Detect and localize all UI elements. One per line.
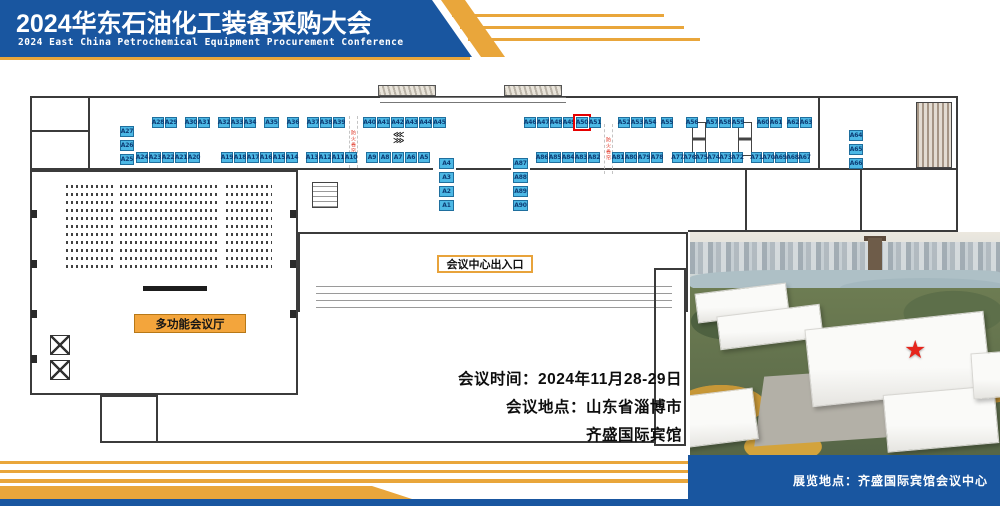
booth-a69: A69: [775, 152, 786, 163]
seat-row: [66, 225, 114, 228]
booth-a31: A31: [198, 117, 210, 128]
booth-a73: A73: [720, 152, 731, 163]
photo-building: [970, 351, 1000, 400]
booth-a45: A45: [433, 117, 446, 128]
exhibition-venue-label: 展览地点：齐盛国际宾馆会议中心: [793, 472, 988, 489]
booth-a5: A5: [418, 152, 430, 163]
booth-a80: A80: [625, 152, 637, 163]
booth-a66: A66: [849, 158, 863, 169]
seat-row: [66, 185, 114, 188]
booth-a18: A18: [234, 152, 246, 163]
seat-row: [120, 233, 220, 236]
seat-row: [226, 225, 272, 228]
seat-row: [120, 185, 220, 188]
booth-a36: A36: [287, 117, 299, 128]
booth-a85: A85: [549, 152, 561, 163]
booth-a84: A84: [562, 152, 574, 163]
booth-a75: A75: [696, 152, 707, 163]
seat-row: [226, 265, 272, 268]
booth-a8: A8: [379, 152, 391, 163]
seat-row: [66, 241, 114, 244]
footer-stripe: [0, 479, 690, 483]
seat-row: [226, 249, 272, 252]
booth-a21: A21: [175, 152, 187, 163]
seat-row: [66, 249, 114, 252]
booth-a4: A4: [439, 158, 454, 169]
pillar: [290, 210, 296, 218]
booth-a26: A26: [120, 140, 134, 151]
booth-a89: A89: [513, 186, 528, 197]
booth-a11: A11: [332, 152, 344, 163]
entrance-canopy: [380, 97, 566, 103]
seat-row: [66, 257, 114, 260]
booth-a60: A60: [757, 117, 769, 128]
header-stripe: [452, 14, 664, 17]
seat-row: [226, 193, 272, 196]
footer-stripe: [0, 470, 690, 473]
conference-subtitle: 2024 East China Petrochemical Equipment …: [18, 37, 404, 48]
wall: [88, 96, 90, 168]
pillar: [31, 210, 37, 218]
seat-row: [226, 257, 272, 260]
seat-row: [226, 241, 272, 244]
booth-a90: A90: [513, 200, 528, 211]
conference-location: 会议地点：山东省淄博市: [400, 394, 682, 422]
footer-gold-band: [0, 486, 412, 499]
seat-row: [66, 217, 114, 220]
booth-a10: A10: [345, 152, 357, 163]
header-stripe: [460, 26, 684, 29]
booth-a77: A77: [672, 152, 683, 163]
booth-a65: A65: [849, 144, 863, 155]
header-stripe: [468, 38, 700, 41]
seat-row: [66, 209, 114, 212]
booth-a34: A34: [244, 117, 256, 128]
seat-row: [226, 185, 272, 188]
booth-a88: A88: [513, 172, 528, 183]
seat-row: [120, 241, 220, 244]
booth-a25: A25: [120, 154, 134, 165]
seat-row: [226, 217, 272, 220]
pillar: [31, 355, 37, 363]
booth-a72: A72: [732, 152, 743, 163]
booth-a57: A57: [706, 117, 718, 128]
entrance-ramp: [378, 85, 436, 96]
conference-title: 2024华东石油化工装备采购大会: [16, 4, 372, 40]
poster: 2024华东石油化工装备采购大会 2024 East China Petroch…: [0, 0, 1000, 506]
booth-a61: A61: [770, 117, 782, 128]
booth-a64: A64: [849, 130, 863, 141]
arrow-right-icon: ⋙: [393, 138, 404, 144]
seat-row: [120, 209, 220, 212]
booth-a22: A22: [162, 152, 174, 163]
booth-a67: A67: [799, 152, 810, 163]
booth-a6: A6: [405, 152, 417, 163]
seat-row: [66, 265, 114, 268]
booth-a71: A71: [751, 152, 762, 163]
seat-row: [120, 225, 220, 228]
booth-a23: A23: [149, 152, 161, 163]
booth-a55: A55: [661, 117, 673, 128]
booth-a29: A29: [165, 117, 177, 128]
seat-row: [120, 193, 220, 196]
wall: [860, 170, 862, 230]
seat-row: [120, 201, 220, 204]
booth-a1: A1: [439, 200, 454, 211]
seat-row: [226, 201, 272, 204]
seat-row: [120, 249, 220, 252]
wall: [456, 168, 511, 170]
booth-a33: A33: [231, 117, 243, 128]
booth-a27: A27: [120, 126, 134, 137]
wall: [818, 96, 820, 170]
booth-a70: A70: [763, 152, 774, 163]
staircase-hatch: [916, 102, 952, 168]
pillar: [31, 310, 37, 318]
booth-a41: A41: [377, 117, 390, 128]
seating-area: [66, 185, 114, 273]
annex-outline: [100, 395, 158, 443]
booth-a3: A3: [439, 172, 454, 183]
multi-function-hall-label: 多功能会议厅: [134, 314, 246, 333]
entrance-ramp: [504, 85, 562, 96]
footer-blue-panel: 展览地点：齐盛国际宾馆会议中心: [688, 455, 1000, 506]
booth-a47: A47: [537, 117, 549, 128]
booth-a14: A14: [286, 152, 298, 163]
booth-a15: A15: [273, 152, 285, 163]
booth-a13: A13: [306, 152, 318, 163]
booth-a28: A28: [152, 117, 164, 128]
booth-a74: A74: [708, 152, 719, 163]
booth-a17: A17: [247, 152, 259, 163]
booth-a52: A52: [618, 117, 630, 128]
booth-a78: A78: [651, 152, 663, 163]
booth-a24: A24: [136, 152, 148, 163]
booth-a7: A7: [392, 152, 404, 163]
wall: [956, 96, 958, 232]
booth-a62: A62: [787, 117, 799, 128]
booth-a39: A39: [333, 117, 345, 128]
stairs-icon: [50, 360, 70, 380]
booth-a44: A44: [419, 117, 432, 128]
direction-arrows-icon: ⋘ ⋙: [393, 132, 404, 144]
venue-star-marker-icon: ★: [904, 338, 926, 363]
seating-area: [120, 185, 220, 273]
wall: [745, 170, 747, 230]
booth-a48: A48: [550, 117, 562, 128]
booth-a87: A87: [513, 158, 528, 169]
seat-row: [66, 193, 114, 196]
conference-info: 会议时间：2024年11月28-29日 会议地点：山东省淄博市 齐盛国际宾馆: [400, 366, 682, 450]
wall: [530, 168, 958, 170]
stairs-block: [312, 182, 338, 208]
booth-a35: A35: [264, 117, 279, 128]
booth-a56: A56: [686, 117, 698, 128]
booth-a2: A2: [439, 186, 454, 197]
booth-a9: A9: [366, 152, 378, 163]
booth-a30: A30: [185, 117, 197, 128]
seat-row: [120, 217, 220, 220]
booth-a38: A38: [320, 117, 332, 128]
booth-a16: A16: [260, 152, 272, 163]
booth-a58: A58: [719, 117, 731, 128]
conference-venue: 齐盛国际宾馆: [400, 422, 682, 450]
booth-a19: A19: [221, 152, 233, 163]
pillar: [290, 310, 296, 318]
booth-a81: A81: [612, 152, 624, 163]
booth-a32: A32: [218, 117, 230, 128]
booth-a79: A79: [638, 152, 650, 163]
footer-stripe: [0, 461, 690, 464]
booth-a20: A20: [188, 152, 200, 163]
seat-row: [226, 233, 272, 236]
booth-a43: A43: [405, 117, 418, 128]
booth-a42: A42: [391, 117, 404, 128]
seat-row: [120, 257, 220, 260]
seat-row: [66, 233, 114, 236]
lobby-steps: [316, 282, 672, 308]
booth-a68: A68: [787, 152, 798, 163]
wall: [30, 130, 88, 132]
seat-row: [226, 209, 272, 212]
booth-a83: A83: [575, 152, 587, 163]
booth-a53: A53: [631, 117, 643, 128]
stage-bar: [143, 286, 207, 291]
pillar: [290, 260, 296, 268]
booth-a86: A86: [536, 152, 548, 163]
booth-a37: A37: [307, 117, 319, 128]
fire-shutter-label: 防火卷帘: [604, 124, 613, 174]
booth-a50: A50: [576, 117, 588, 128]
booth-a51: A51: [589, 117, 601, 128]
booth-a46: A46: [524, 117, 536, 128]
booth-a12: A12: [319, 152, 331, 163]
entrance-label: 会议中心出入口: [437, 255, 533, 273]
photo-building: [688, 387, 759, 448]
booth-a63: A63: [800, 117, 812, 128]
seat-row: [66, 201, 114, 204]
booth-a82: A82: [588, 152, 600, 163]
stairs-icon: [50, 335, 70, 355]
seat-row: [120, 265, 220, 268]
booth-a76: A76: [684, 152, 695, 163]
pillar: [31, 260, 37, 268]
booth-a49: A49: [563, 117, 575, 128]
venue-photo: ★: [688, 232, 1000, 455]
seating-area: [226, 185, 272, 273]
conference-time: 会议时间：2024年11月28-29日: [400, 366, 682, 394]
booth-a59: A59: [732, 117, 744, 128]
booth-a54: A54: [644, 117, 656, 128]
booth-a40: A40: [363, 117, 376, 128]
